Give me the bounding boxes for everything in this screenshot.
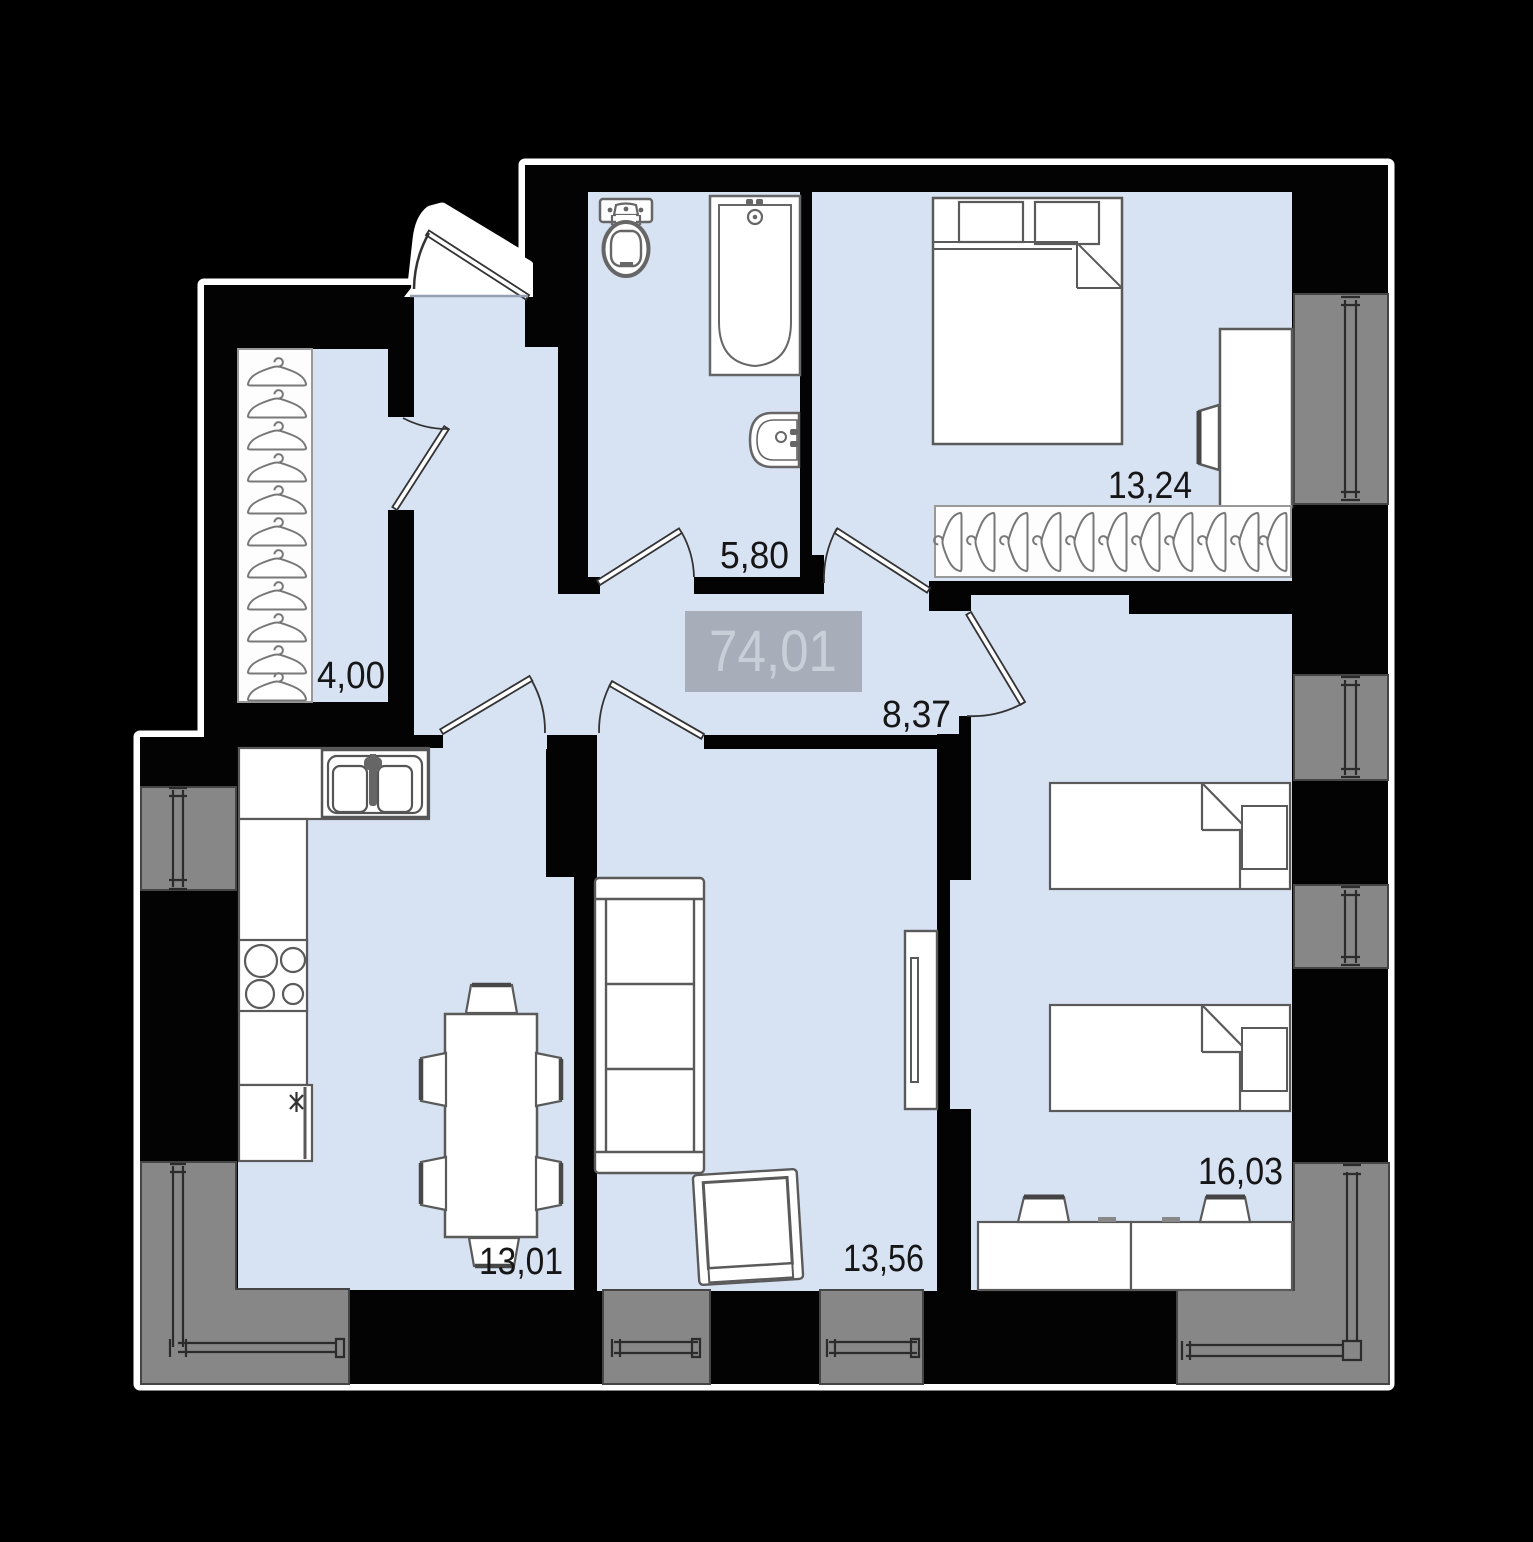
svg-text:4,00: 4,00 [317, 655, 385, 697]
svg-text:5,80: 5,80 [720, 535, 789, 577]
svg-text:74,01: 74,01 [709, 619, 837, 684]
svg-text:16,03: 16,03 [1198, 1151, 1283, 1193]
svg-text:13,01: 13,01 [479, 1241, 563, 1283]
svg-text:13,56: 13,56 [843, 1238, 924, 1280]
svg-text:8,37: 8,37 [882, 694, 951, 736]
svg-text:13,24: 13,24 [1108, 465, 1192, 507]
